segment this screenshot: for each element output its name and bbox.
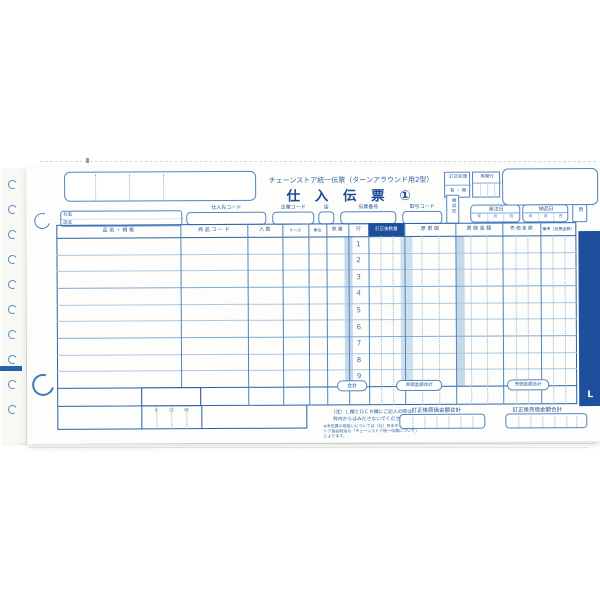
delivery-date-box: 納品日 年 月 日: [522, 204, 568, 222]
perforation-edge: [40, 161, 596, 162]
col-header-cost-price: 原 単 価: [404, 223, 455, 236]
sprocket-hole: [7, 229, 18, 240]
date-unit-month: 月: [539, 213, 552, 219]
ocr-tick: 16: [179, 407, 193, 412]
grid-line: [566, 416, 567, 427]
grid-line: [542, 416, 543, 427]
stamp-box: [141, 387, 201, 406]
company-row-label: 社名: [63, 212, 72, 218]
grid-line: [460, 417, 461, 428]
grid-line: [201, 406, 202, 429]
col-header-line: 行: [348, 223, 368, 236]
row-number: 4: [349, 289, 369, 297]
tractor-strip: [2, 168, 27, 446]
row-number: 1: [348, 240, 368, 248]
grid-line: [412, 417, 413, 428]
registration-mark: [0, 366, 22, 371]
row-number: 6: [349, 323, 369, 331]
page-box: 頁: [572, 204, 587, 222]
punch-hole-icon: [32, 210, 53, 231]
row-number: 7: [349, 339, 369, 347]
row-number: 9: [349, 372, 369, 380]
grid-line: [141, 406, 142, 429]
sprocket-hole: [7, 204, 18, 215]
col-header-unit: 単位: [308, 223, 326, 236]
retail-total-tab: 売価金額合計: [507, 379, 549, 390]
sprocket-hole: [7, 404, 18, 415]
edge-tick: [86, 158, 89, 163]
correction-options: 有 ・ 無: [445, 188, 471, 194]
grid-line: [494, 183, 495, 198]
col-header-item-code: 商 品 コ ー ド: [180, 224, 247, 237]
grid-line: [518, 416, 519, 427]
supplier-name-box: [502, 168, 598, 206]
grid-line: [448, 417, 449, 428]
slip-sheet: チェーンストア統一伝票（ターンアラウンド用2型） 仕 入 伝 票 ① 訂正処理 …: [26, 164, 600, 444]
grid-line: [445, 185, 471, 186]
row-number: 2: [348, 256, 368, 264]
grid-line: [61, 218, 183, 220]
grid-line: [530, 416, 531, 427]
total-tab: 合計: [337, 380, 367, 391]
inspection-stamp-label: 検収印: [450, 198, 456, 215]
sprocket-hole: [7, 379, 18, 390]
ocr-tick: 12: [164, 407, 178, 412]
page-label: 頁: [573, 206, 588, 213]
col-header-case: ケース: [282, 224, 308, 237]
grid-line: [95, 175, 96, 201]
grid-line: [480, 183, 481, 198]
sheet-stack-edge: [28, 447, 588, 448]
grid-line: [424, 417, 425, 428]
l-mark: L: [579, 390, 600, 400]
date-unit-day: 日: [554, 213, 567, 219]
row-number: 8: [349, 356, 369, 364]
col-header-quantity: 数 量: [326, 223, 348, 236]
inspection-stamp-box: 検収印: [446, 195, 459, 224]
punch-hole-icon: [28, 370, 58, 400]
grid-line: [436, 417, 437, 428]
ocr-tick: 8: [149, 407, 163, 412]
cost-total-field: [399, 414, 485, 429]
col-header-pack-qty: 入 数: [247, 224, 282, 237]
grid-line: [129, 174, 130, 200]
grid-line: [472, 417, 473, 428]
sprocket-hole: [7, 254, 18, 265]
col-header-corrected-qty: 訂正後数量: [368, 223, 404, 236]
col-header-item-name: 品 名 ・ 規 格: [56, 224, 180, 238]
sprocket-hole: [7, 304, 18, 315]
reissue-label: 再発行: [473, 174, 501, 180]
date-unit-year: 年: [472, 214, 486, 220]
grid-line: [163, 174, 164, 200]
order-date-box: 発注日 年 月 日: [470, 204, 520, 222]
date-unit-day: 日: [504, 213, 518, 219]
date-unit-year: 年: [524, 213, 537, 219]
row-number: 5: [349, 306, 369, 314]
sprocket-hole: [7, 179, 18, 190]
cost-total-tab: 原価金額合計: [396, 380, 442, 391]
grid-line: [576, 416, 577, 427]
ocr-clear-band: [578, 231, 600, 406]
sprocket-hole: [7, 354, 18, 365]
col-header-cost-amount: 原 価 金 額: [455, 223, 502, 236]
row-number: 3: [349, 273, 369, 281]
date-unit-month: 月: [488, 214, 502, 220]
grid-line: [487, 183, 488, 198]
sprocket-hole: [7, 279, 18, 290]
col-header-remarks: 備考（伝票金額）: [540, 222, 576, 235]
form-photo: チェーンストア統一伝票（ターンアラウンド用2型） 仕 入 伝 票 ① 訂正処理 …: [0, 0, 600, 600]
col-header-retail-amount: 売 価 金 額: [502, 222, 540, 235]
sprocket-hole: [7, 329, 18, 340]
correction-label: 訂正処理: [445, 174, 471, 180]
reissue-box: 再発行: [472, 172, 500, 198]
store-code-label: 店: [318, 204, 334, 211]
retail-total-field: [505, 413, 587, 428]
grid-line: [554, 416, 555, 427]
table-border: [56, 222, 577, 407]
